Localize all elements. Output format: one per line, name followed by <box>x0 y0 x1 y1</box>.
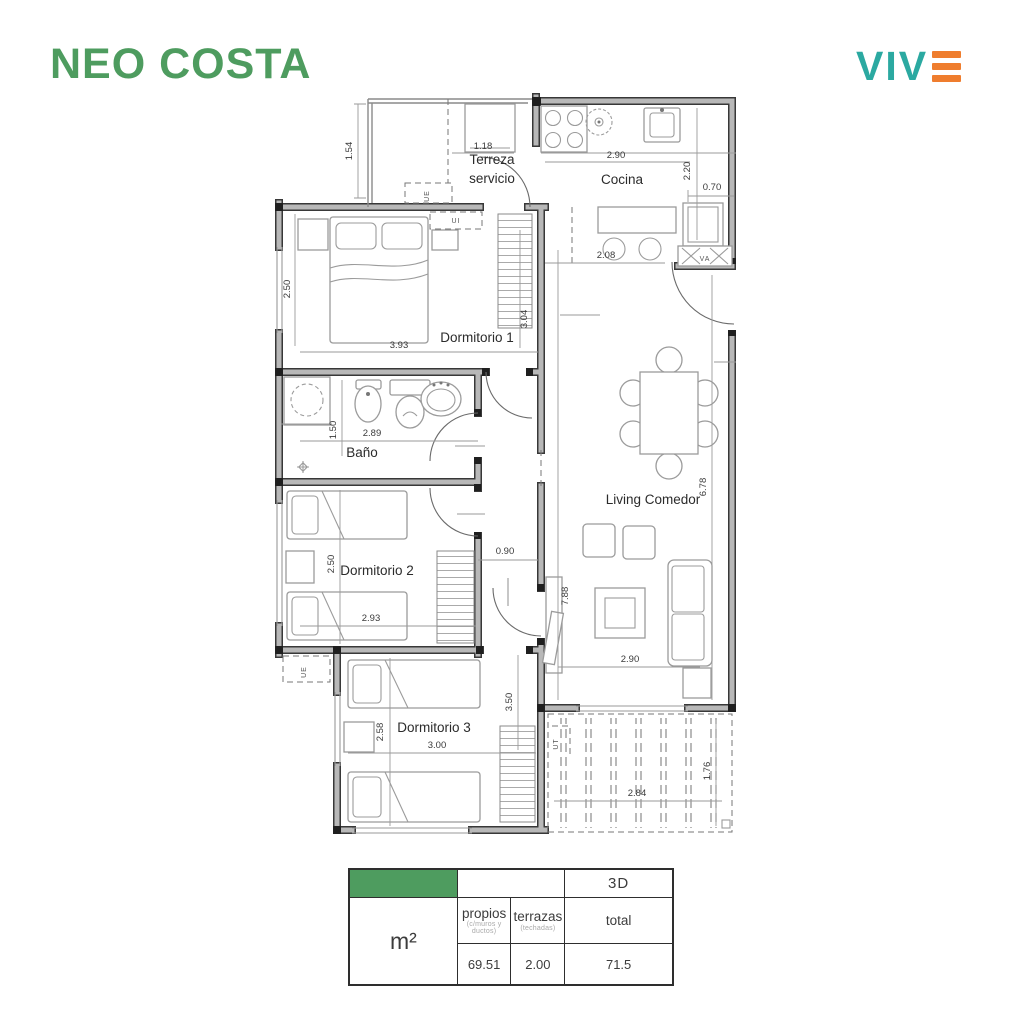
coffee-table <box>595 588 645 638</box>
bidet-icon <box>355 380 381 422</box>
nightstand <box>286 551 314 583</box>
dim-label: 2.90 <box>607 150 626 161</box>
room-label-terraza-2: servicio <box>469 171 515 186</box>
room-label-cocina: Cocina <box>601 172 644 187</box>
propios-value-cell: 69.51 <box>457 944 511 986</box>
propios-subtitle: (c/muros y ductos) <box>458 921 511 935</box>
dim-label: 2.90 <box>621 654 640 665</box>
entry-door-arc <box>672 262 734 324</box>
propios-header-cell: propios (c/muros y ductos) <box>457 898 511 944</box>
kitchen-sink-icon <box>644 108 680 142</box>
pantry-cabinet <box>683 203 723 246</box>
armchair <box>623 526 655 559</box>
floor-drain-icon <box>297 461 309 473</box>
nightstand <box>432 230 458 250</box>
dim-label: 3.04 <box>519 310 530 329</box>
area-summary-table: 3D m² propios (c/muros y ductos) terraza… <box>348 868 674 986</box>
dormitorio-1 <box>298 212 532 343</box>
dim-label: 2.89 <box>363 428 382 439</box>
dim-label: 1.18 <box>474 141 493 152</box>
dorm1-door-arc <box>486 372 532 418</box>
single-bed <box>348 772 480 822</box>
dim-label: 2.50 <box>326 555 337 574</box>
tag-va: VA <box>700 256 711 263</box>
dorm3-door-arc <box>493 588 541 636</box>
stool <box>639 238 661 260</box>
side-table <box>683 668 711 698</box>
wardrobe <box>437 551 474 643</box>
terrazas-subtitle: (techadas) <box>511 925 564 932</box>
tag-ue-top: UE <box>424 190 431 202</box>
dim-label: 2.20 <box>682 162 693 181</box>
dining-set <box>620 347 718 479</box>
terrazas-value-cell: 2.00 <box>511 944 565 986</box>
wardrobe <box>500 726 535 822</box>
table-green-cell <box>349 869 457 898</box>
dim-label: 1.50 <box>328 421 339 440</box>
dim-label: 2.93 <box>362 613 381 624</box>
tag-ue-bottom: UE <box>301 666 308 678</box>
dim-label: 1.54 <box>344 142 355 161</box>
dorm2-door-arc <box>430 488 478 536</box>
terrazas-title: terrazas <box>511 909 564 925</box>
table-3d-cell: 3D <box>565 869 673 898</box>
tag-ui: UI <box>452 218 461 225</box>
table-empty-cell <box>457 869 565 898</box>
dim-label: 3.00 <box>428 740 447 751</box>
single-bed <box>287 491 407 539</box>
washbasin-icon <box>421 382 461 417</box>
total-value-cell: 71.5 <box>565 944 673 986</box>
kitchen-bar <box>598 207 676 233</box>
dim-label: 2.84 <box>628 788 647 799</box>
armchair <box>583 524 615 557</box>
room-label-terraza-1: Terreza <box>469 152 515 167</box>
dim-label: 2.08 <box>597 250 616 261</box>
single-bed <box>348 660 480 708</box>
dim-label: 0.70 <box>703 182 722 193</box>
propios-title: propios <box>458 906 511 922</box>
dim-label: 2.58 <box>375 723 386 742</box>
total-header-cell: total <box>565 898 673 944</box>
dim-label: 3.50 <box>504 693 515 712</box>
double-bed <box>330 217 428 343</box>
room-label-dormitorio-2: Dormitorio 2 <box>340 563 414 578</box>
dim-label: 3.93 <box>390 340 409 351</box>
terrazas-header-cell: terrazas (techadas) <box>511 898 565 944</box>
single-burner-icon <box>586 109 612 135</box>
living-comedor <box>543 347 718 698</box>
room-label-living: Living Comedor <box>606 492 701 507</box>
dim-label: 7.88 <box>560 587 571 606</box>
dim-label: 0.90 <box>496 546 515 557</box>
nightstand <box>344 722 374 752</box>
bath-door-arc <box>430 413 478 461</box>
nightstand <box>298 219 328 250</box>
dim-label: 1.76 <box>702 762 713 781</box>
room-label-dormitorio-3: Dormitorio 3 <box>397 720 471 735</box>
tag-ut: UT <box>553 738 560 749</box>
shower-icon <box>281 377 332 425</box>
room-label-dormitorio-1: Dormitorio 1 <box>440 330 514 345</box>
single-bed <box>287 592 407 640</box>
unit-cell: m² <box>349 898 457 986</box>
sofa <box>668 560 712 666</box>
room-label-bano: Baño <box>346 445 378 460</box>
dim-label: 2.50 <box>282 280 293 299</box>
